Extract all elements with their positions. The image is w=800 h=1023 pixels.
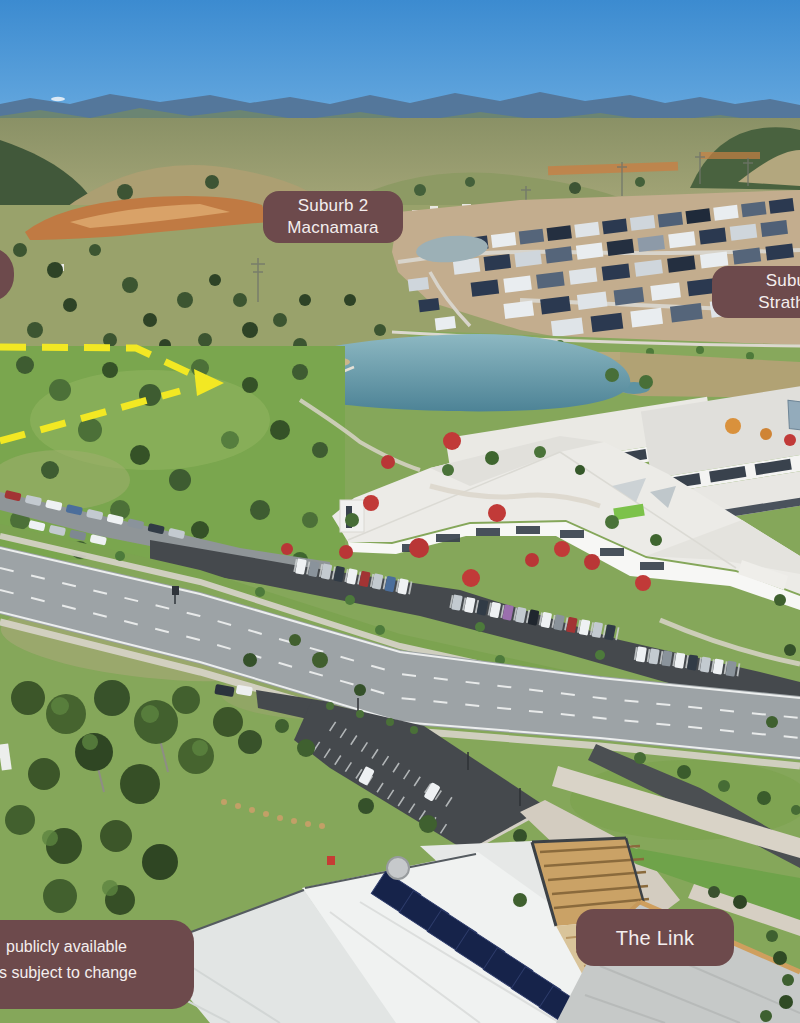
disclaimer-box: publicly available s subject to change xyxy=(0,920,194,1009)
label-line: Suburb 1 xyxy=(766,270,800,292)
aerial-photo: Suburb 2 Macnamara Suburb 1 Strathnairn … xyxy=(0,0,800,1023)
disclaimer-line-2: s subject to change xyxy=(0,960,137,986)
label-suburb-2-macnamara: Suburb 2 Macnamara xyxy=(263,191,403,243)
red-box xyxy=(327,856,335,865)
label-line: Suburb 2 xyxy=(298,195,369,217)
label-the-link: The Link xyxy=(576,909,734,966)
label-line: Macnamara xyxy=(287,217,379,239)
label-line: The Link xyxy=(616,925,694,951)
disclaimer-line-1: publicly available xyxy=(6,934,137,960)
water-tank xyxy=(387,857,409,879)
label-line: Strathnairn xyxy=(758,292,800,314)
label-suburb-1-strathnairn-clipped: Suburb 1 Strathnairn xyxy=(712,266,800,318)
